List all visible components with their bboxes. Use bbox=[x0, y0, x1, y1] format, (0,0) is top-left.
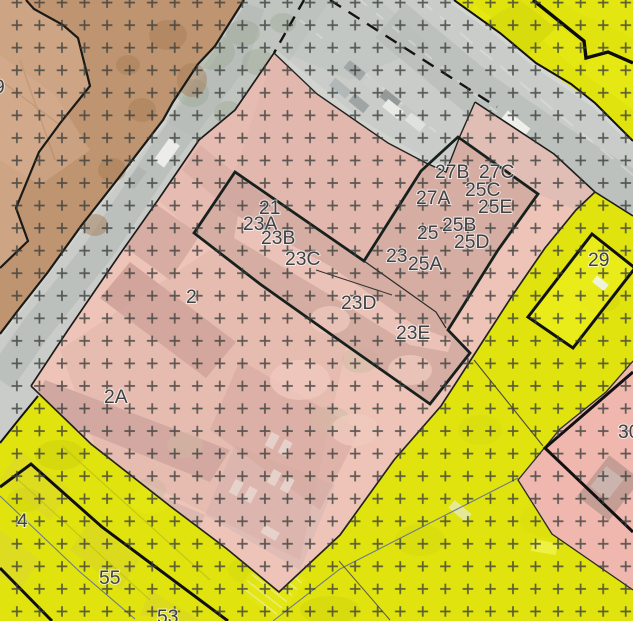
svg-text:25D: 25D bbox=[454, 232, 489, 253]
svg-text:23: 23 bbox=[386, 246, 407, 267]
svg-text:27C: 27C bbox=[479, 162, 514, 183]
svg-text:25: 25 bbox=[417, 223, 438, 244]
svg-text:25E: 25E bbox=[478, 197, 512, 218]
svg-text:9: 9 bbox=[0, 77, 5, 98]
svg-text:30: 30 bbox=[618, 422, 633, 443]
svg-text:27B: 27B bbox=[435, 162, 469, 183]
svg-text:53: 53 bbox=[157, 607, 178, 621]
svg-text:27A: 27A bbox=[416, 188, 450, 209]
svg-text:55: 55 bbox=[99, 568, 120, 589]
svg-text:23B: 23B bbox=[261, 228, 295, 249]
svg-text:23E: 23E bbox=[396, 323, 430, 344]
svg-text:25A: 25A bbox=[408, 254, 442, 275]
svg-text:4: 4 bbox=[17, 511, 28, 532]
svg-text:2A: 2A bbox=[104, 387, 128, 408]
svg-text:23D: 23D bbox=[341, 293, 376, 314]
svg-text:29: 29 bbox=[588, 250, 609, 271]
svg-text:2: 2 bbox=[186, 287, 197, 308]
svg-text:23C: 23C bbox=[285, 249, 320, 270]
